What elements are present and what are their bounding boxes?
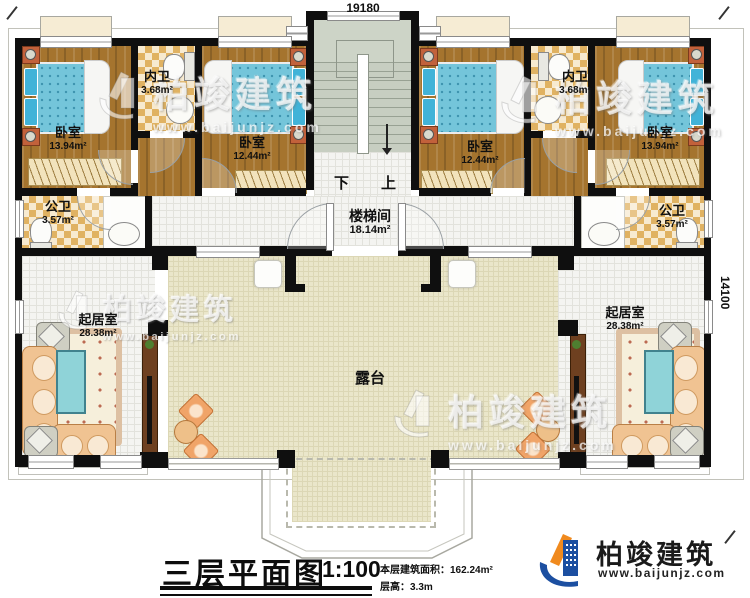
wall [152,248,168,270]
wall [138,131,150,138]
wall [235,188,306,196]
wall [15,188,77,196]
window [704,300,713,334]
bed-blanket [618,60,644,134]
room-label-bath-public-right: 公卫3.57m² [640,204,704,230]
wall-column [140,452,168,468]
dim-tick [6,6,17,20]
sofa-cushion [32,389,56,415]
wall-column [296,284,305,292]
bed-pillow [690,98,704,126]
room-label-bedroom-mid-left: 卧室12.44m² [212,136,292,162]
lamp-icon [691,49,702,60]
stair-direction-arrow [386,124,388,150]
room-label-bath-inner-left: 内卫3.68m² [122,70,192,96]
sink [108,222,140,246]
wall [558,320,578,336]
wall [524,188,531,196]
company-logo-icon [536,528,590,590]
tv [147,376,152,444]
roof-dashed-line [286,458,436,528]
wall [524,38,531,196]
title-underline-thin [160,594,372,596]
wall [588,188,616,196]
bed-pillow [24,98,38,126]
stair-handrail [357,54,369,154]
floor-height-note: 层高：3.3m [380,578,433,593]
stair-down-label: 下 [334,172,349,193]
stair-arrow-head [382,148,392,155]
window [218,36,292,48]
dimension-right: 14100 [718,276,732,309]
room-label-living-right: 起居室28.38m² [585,306,665,332]
window [196,246,260,258]
wall-column [431,450,449,468]
sink [534,96,562,124]
window [15,300,24,334]
wall [649,188,711,196]
coffee-table [56,350,86,414]
terrace-light [254,260,282,288]
sofa-cushion [87,435,109,457]
bed-blanket [204,60,232,134]
wall [576,131,588,138]
nightstand [22,46,40,64]
wall [419,188,491,196]
room-label-bath-inner-right: 内卫3.68m² [540,70,610,96]
drawing-scale: 1:100 [322,556,381,583]
room-label-bath-public-left: 公卫3.57m² [26,200,90,226]
bed-blanket [84,60,110,134]
window [436,36,510,48]
wall [558,248,574,270]
window [40,36,112,48]
room-label-bedroom-far-right: 卧室13.94m² [620,126,700,152]
wall [145,196,152,256]
lamp-icon [293,51,304,62]
bed-pillow [422,68,436,96]
dim-tick [724,530,735,544]
plant [572,340,581,349]
window [586,455,628,469]
stair-up-label: 上 [381,172,396,193]
wall [195,188,202,196]
bed-pillow [292,68,306,96]
wall [15,248,152,256]
wall-column [558,452,586,468]
end-table [670,426,704,458]
floor-terrace [168,256,558,458]
dimension-top: 19180 [313,1,413,15]
building-area-note: 本层建筑面积：162.24m² [380,561,493,576]
sofa-cushion [674,389,698,415]
window [28,455,74,469]
wall-column [285,256,296,292]
wall [148,320,168,336]
wall-column [421,284,430,292]
window [704,200,713,238]
lamp-icon [672,427,699,454]
terrace-railing [449,458,560,470]
bed-pillow [422,98,436,126]
wall-column [430,256,441,292]
floor-stair-hall [314,152,411,198]
wall [183,131,195,138]
lamp-icon [26,427,53,454]
wall-column [277,450,295,468]
wall [574,248,711,256]
tv [574,376,579,444]
sofa-cushion [61,435,83,457]
room-label-living-left: 起居室28.38m² [58,313,138,339]
lamp-icon [423,51,434,62]
company-logo-website: www.baijunjz.com [598,566,726,580]
sofa-cushion [674,355,698,381]
title-underline [160,586,372,590]
room-label-bedroom-far-left: 卧室13.94m² [28,126,108,152]
wall [195,38,202,196]
plant [145,340,154,349]
sofa-cushion [32,355,56,381]
bed-pillow [690,68,704,96]
window [100,455,142,469]
wall [574,196,581,256]
dim-tick [718,6,729,20]
bed-pillow [24,68,38,96]
wall [531,131,543,138]
bed [226,62,294,134]
sink [166,96,194,124]
lamp-icon [25,49,36,60]
window [616,36,690,48]
wall [411,11,419,190]
end-table [24,426,58,458]
room-label-terrace: 露台 [333,370,407,387]
sofa-cushion [621,435,643,457]
bed-pillow [292,98,306,126]
nightstand [420,48,438,66]
bed [436,62,504,134]
room-label-bedroom-mid-right: 卧室12.44m² [440,140,520,166]
floor-plan: 卧室13.94m² 内卫3.68m² 卧室12.44m² 卧室12.44m² 内… [0,0,750,598]
room-label-stair-hall: 楼梯间18.14m² [325,208,415,237]
lamp-icon [293,129,304,140]
coffee-table [644,350,674,414]
window [15,200,24,238]
window [468,246,532,258]
nightstand [420,126,438,144]
sofa-cushion [647,435,669,457]
window [654,455,700,469]
terrace-light [448,260,476,288]
lamp-icon [423,129,434,140]
wall [110,188,138,196]
bed-blanket [496,60,524,134]
terrace-railing [168,458,279,470]
